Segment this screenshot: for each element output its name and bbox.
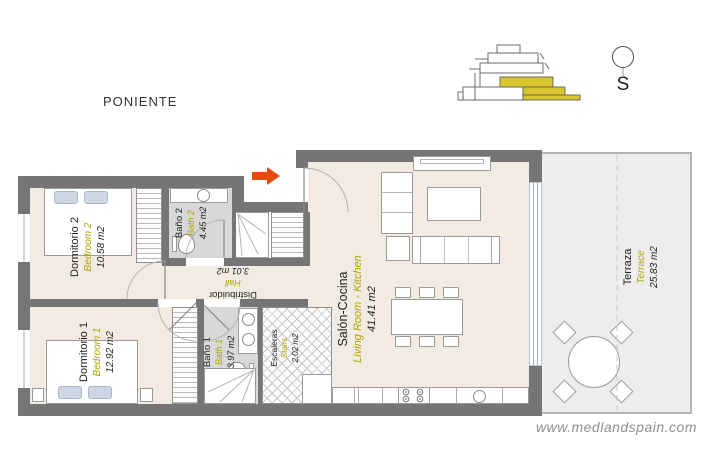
nightstand [140, 388, 153, 402]
dining-chair [443, 336, 459, 347]
sofa-cushion-line [382, 192, 412, 193]
sink-icon [197, 189, 210, 202]
hall-wardrobe [271, 212, 304, 258]
terrace-floor [542, 152, 692, 414]
nightstand [32, 388, 44, 402]
stove [398, 387, 430, 404]
kitchen-sink-icon [473, 390, 486, 403]
sofa-vertical [381, 172, 413, 234]
wall-hall-south-b [240, 299, 308, 307]
dining-chair [419, 287, 435, 298]
wall-terrace-top-stub [529, 150, 542, 182]
compass-circle-icon [612, 46, 634, 68]
counter-divider [354, 388, 355, 403]
shower-bath1 [204, 368, 256, 404]
toilet-icon [178, 234, 195, 254]
wall-top-left-wing [18, 176, 244, 188]
pillow-icon [58, 386, 82, 399]
bedroom2-wardrobe [136, 188, 162, 263]
wall-bedroom2-east [162, 188, 169, 258]
sofa-cushion-line [444, 237, 445, 263]
dining-chair [395, 287, 411, 298]
coffee-table [427, 187, 481, 221]
kitchen-counter [332, 387, 529, 404]
counter-divider [456, 388, 457, 403]
bedroom1-wardrobe [172, 307, 198, 404]
sofa-armrest-line [491, 237, 492, 263]
building-section-icon [455, 33, 585, 103]
toilet-tank-icon [172, 236, 177, 252]
dining-table [391, 299, 463, 335]
living-floor [308, 162, 529, 404]
wall-bath1-east [258, 307, 262, 404]
compass-south-label: S [611, 74, 635, 96]
dining-chair [443, 287, 459, 298]
wall-living-left-stub [296, 150, 308, 168]
wall-hall-north-b [224, 258, 308, 266]
wall-hall-south-a [196, 299, 204, 307]
floor-plan-page: { "header": { "zone_label": "PONIENTE" }… [0, 0, 705, 454]
counter-divider [502, 388, 503, 403]
sofa-cushion-line [382, 212, 412, 213]
wall-bedrooms-divider [18, 299, 158, 307]
window-bedroom2 [18, 214, 30, 262]
counter-divider [382, 388, 383, 403]
entrance-arrow [252, 172, 267, 180]
counter-divider [358, 388, 359, 403]
entrance-arrow-head [267, 167, 280, 185]
side-table [386, 236, 410, 261]
sink-icon [242, 313, 255, 326]
terrace-sliding-glass-door [529, 182, 542, 366]
dining-chair [419, 336, 435, 347]
terrace-table [568, 336, 620, 388]
pillow-icon [84, 191, 108, 204]
wall-entry-horizontal [232, 202, 308, 212]
sofa-horizontal [412, 236, 500, 264]
sink-icon [242, 333, 255, 346]
dining-chair [395, 336, 411, 347]
entry-closet [234, 212, 269, 258]
window-bedroom1 [18, 330, 30, 388]
zone-label: PONIENTE [103, 94, 177, 109]
pillow-icon [88, 386, 112, 399]
sofa-cushion-line [468, 237, 469, 263]
wall-hall-north-a [162, 258, 186, 266]
watermark: www.medlandspain.com [536, 419, 697, 435]
sofa-armrest-line [420, 237, 421, 263]
tv-icon [420, 159, 484, 164]
wall-bottom [18, 404, 542, 416]
stair-landing [302, 374, 332, 404]
wall-terrace-bottom-stub [529, 366, 542, 416]
hall-floor [162, 266, 308, 299]
pillow-icon [54, 191, 78, 204]
